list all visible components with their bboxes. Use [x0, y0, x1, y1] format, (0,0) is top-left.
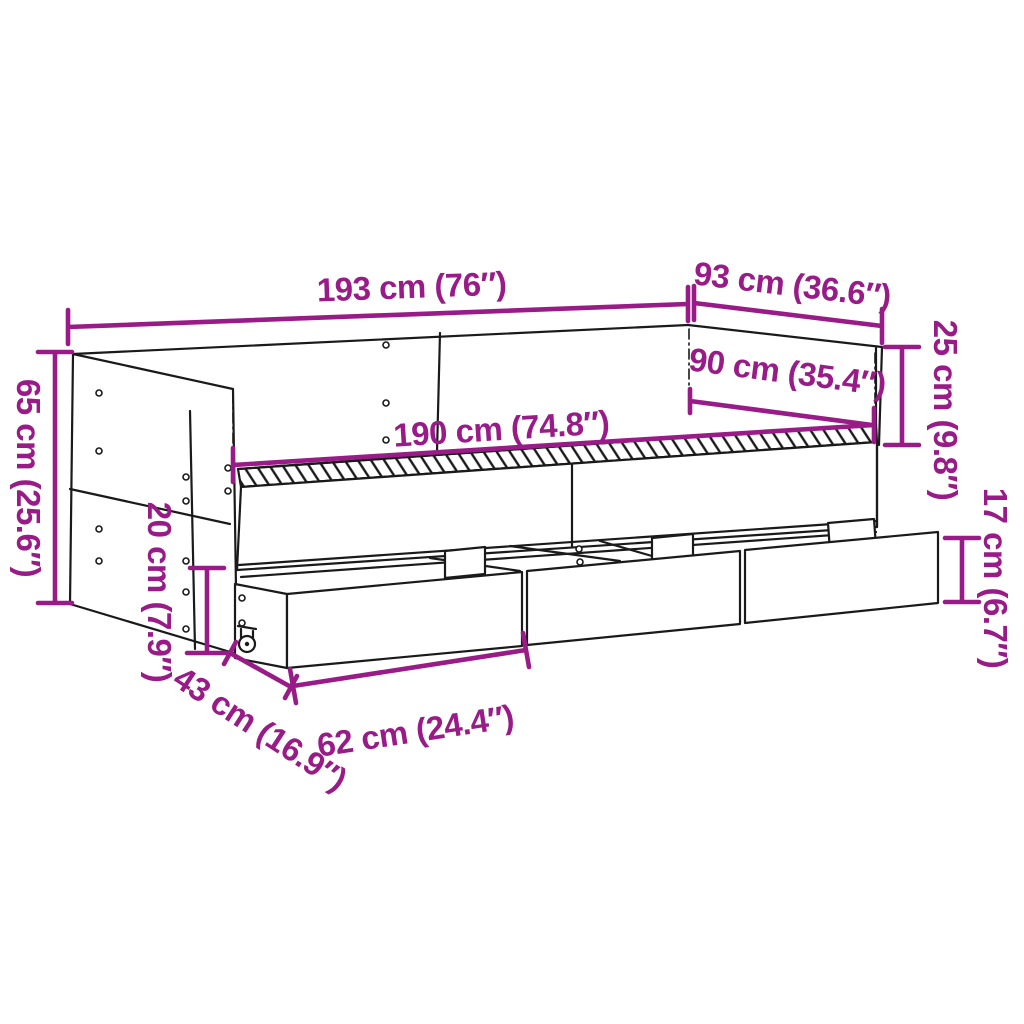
label-side-height: 65 cm (25.6″) — [10, 379, 47, 577]
drawer-1 — [287, 572, 522, 668]
label-overall-length: 193 cm (76″) — [316, 265, 507, 309]
label-inner-depth: 90 cm (35.4″) — [687, 340, 888, 402]
label-drawer-length: 62 cm (24.4″) — [314, 698, 516, 764]
dimension-diagram: 193 cm (76″) 93 cm (36.6″) 25 cm (9.8″) … — [0, 0, 1024, 1024]
drawer-2 — [527, 551, 740, 645]
label-frame-height: 20 cm (7.9″) — [141, 502, 178, 682]
label-backrest-height: 25 cm (9.8″) — [927, 320, 964, 500]
daybed-diagram-canvas: 193 cm (76″) 93 cm (36.6″) 25 cm (9.8″) … — [0, 0, 1024, 1024]
dim-backrest-height — [885, 347, 919, 445]
dim-drawer-height — [945, 538, 979, 602]
label-drawer-height: 17 cm (6.7″) — [977, 488, 1014, 668]
drawer-3 — [745, 532, 938, 623]
